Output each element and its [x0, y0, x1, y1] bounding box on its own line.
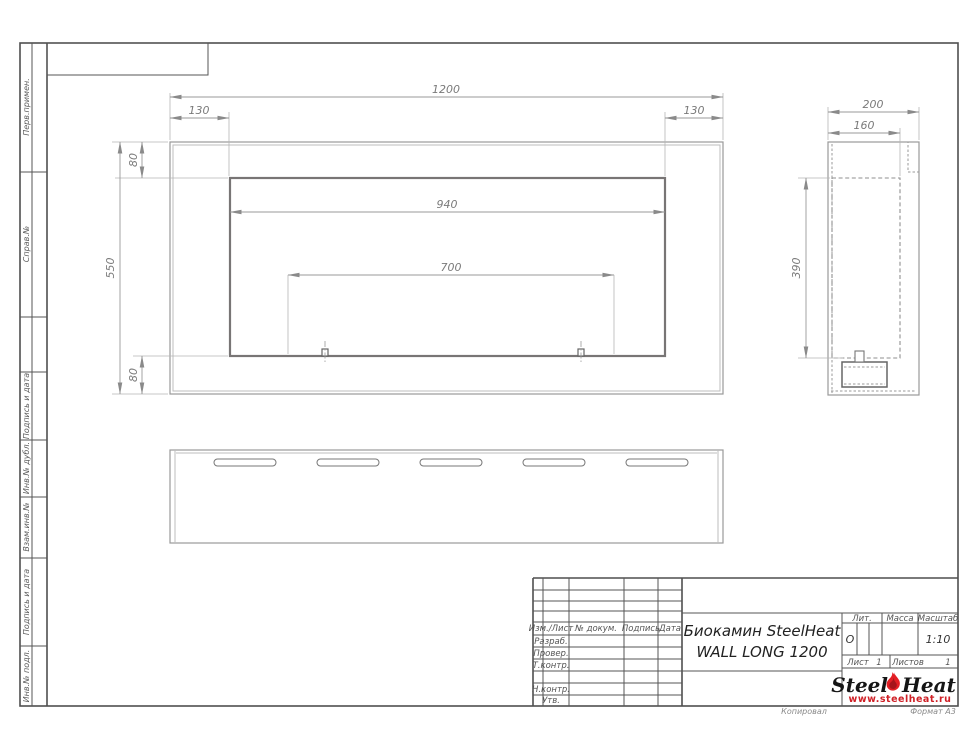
- row-prover: Провер.: [533, 649, 568, 659]
- dim-550: 550: [104, 258, 117, 279]
- sidebar-label: Инв.№ дубл.: [22, 442, 31, 494]
- dim-940: 940: [437, 198, 458, 211]
- footer-copied: Копировал: [781, 707, 827, 716]
- dim-130-left: 130: [189, 104, 210, 117]
- sidebar-label: Подпись и дата: [22, 569, 31, 635]
- row-razrab: Разраб.: [534, 637, 567, 647]
- row-tkontr: Т.контр.: [533, 661, 570, 671]
- lit-label: Лит.: [851, 614, 872, 624]
- top-left-designation-box: [47, 43, 208, 75]
- dim-1200: 1200: [432, 83, 460, 96]
- flame-icon: [887, 672, 900, 690]
- row-utv: Утв.: [542, 696, 560, 706]
- mass-label: Масса: [886, 614, 913, 624]
- dim-80-bottom: 80: [127, 368, 140, 382]
- vent-slot-5: [626, 459, 688, 466]
- header-izm-list: Изм./Лист: [529, 624, 574, 634]
- row-nkontr: Н.контр.: [532, 685, 570, 695]
- doc-title-line1: Биокамин SteelHeat: [684, 622, 842, 640]
- logo-url: www.steelheat.ru: [849, 694, 952, 705]
- burner-knob: [855, 351, 864, 362]
- sheets-value: 1: [945, 658, 950, 668]
- footer-format: Формат А3: [910, 707, 956, 716]
- sidebar-label: Справ.№: [22, 226, 31, 262]
- dim-390: 390: [790, 258, 803, 279]
- doc-title-line2: WALL LONG 1200: [696, 643, 827, 661]
- sheet-label: Лист: [846, 658, 870, 668]
- sidebar-label: Подпись и дата: [22, 373, 31, 439]
- side-bracket-hidden: [908, 142, 919, 172]
- dim-200: 200: [863, 98, 884, 111]
- footer-notes: Копировал Формат А3: [781, 707, 956, 716]
- scale-value: 1:10: [926, 633, 951, 646]
- dim-700: 700: [441, 261, 462, 274]
- vent-slot-1: [214, 459, 276, 466]
- dim-80-top: 80: [127, 153, 140, 167]
- sidebar-label: Взам.инв.№: [22, 502, 31, 551]
- dim-130-right: 130: [684, 104, 705, 117]
- lit-value: О: [846, 633, 855, 646]
- side-burner-block: [842, 362, 887, 387]
- bottom-view: [170, 450, 723, 543]
- sidebar-label: Инв.№ подл.: [22, 650, 31, 703]
- drawing-canvas: Перв.примен. Справ.№ Подпись и дата Инв.…: [0, 0, 970, 749]
- sidebar-label: Перв.примен.: [22, 78, 31, 136]
- vent-slot-3: [420, 459, 482, 466]
- header-date: Дата: [658, 624, 681, 634]
- scale-label: Масштаб: [918, 614, 958, 624]
- bottom-outline: [170, 450, 723, 543]
- side-inner-hidden: [832, 178, 900, 358]
- header-sign: Подпись: [622, 624, 660, 634]
- sheets-label: Листов: [891, 658, 924, 668]
- side-view: 200 160 390: [790, 98, 919, 395]
- vent-slot-4: [523, 459, 585, 466]
- sheet-value: 1: [876, 658, 881, 668]
- front-view: 1200 130 130 80 550 80 940 700: [104, 83, 723, 394]
- drawing-sheet: Перв.примен. Справ.№ Подпись и дата Инв.…: [0, 0, 970, 749]
- vent-slot-2: [317, 459, 379, 466]
- logo: Steel Heat www.steelheat.ru: [831, 672, 956, 705]
- side-outline: [828, 142, 919, 395]
- header-doc: № докум.: [574, 624, 617, 634]
- dim-160: 160: [854, 119, 875, 132]
